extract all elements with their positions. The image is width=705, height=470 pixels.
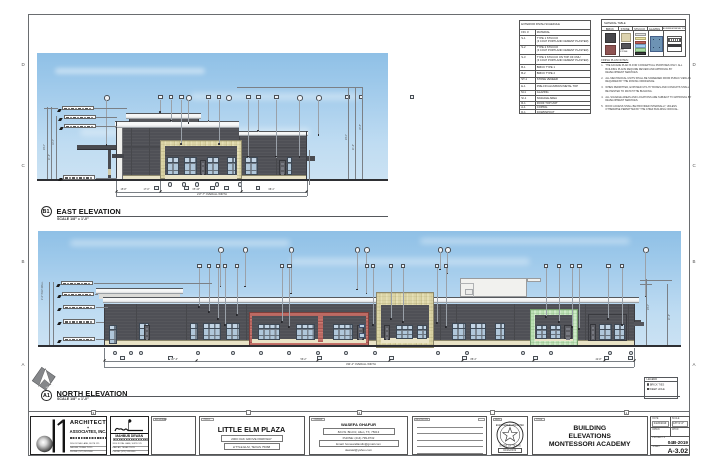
svg-text:NORTH: NORTH — [46, 384, 55, 389]
svg-text:REGISTERED ARCHITECT: REGISTERED ARCHITECT — [496, 423, 524, 427]
